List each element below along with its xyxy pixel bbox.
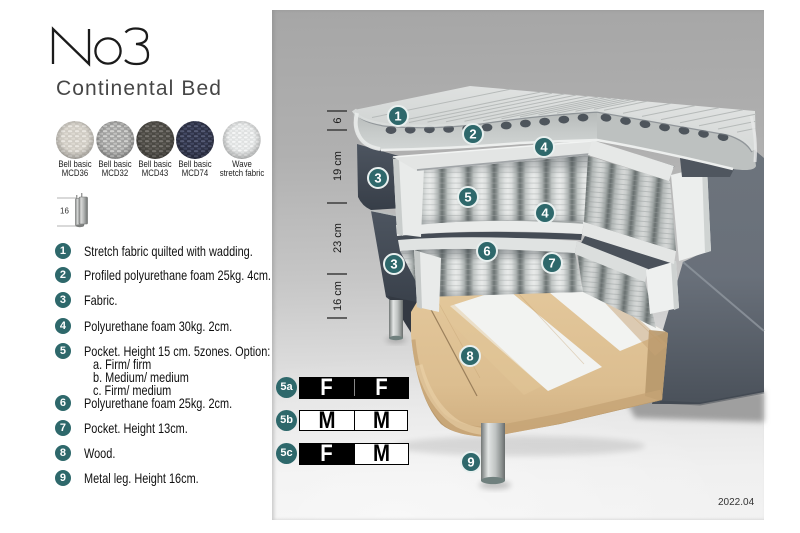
svg-text:2: 2: [469, 127, 476, 142]
svg-text:23 cm: 23 cm: [332, 223, 344, 253]
svg-text:6: 6: [483, 244, 490, 259]
svg-text:16 cm: 16 cm: [332, 281, 344, 311]
svg-text:1: 1: [394, 109, 401, 124]
svg-text:4: 4: [541, 206, 549, 221]
svg-text:4: 4: [540, 140, 548, 155]
svg-text:9: 9: [467, 455, 474, 470]
svg-text:5: 5: [464, 190, 471, 205]
svg-text:3: 3: [390, 257, 397, 272]
svg-text:19 cm: 19 cm: [332, 151, 344, 181]
svg-text:3: 3: [374, 171, 381, 186]
svg-text:8: 8: [466, 349, 473, 364]
svg-text:6: 6: [332, 117, 344, 123]
svg-text:7: 7: [548, 256, 555, 271]
